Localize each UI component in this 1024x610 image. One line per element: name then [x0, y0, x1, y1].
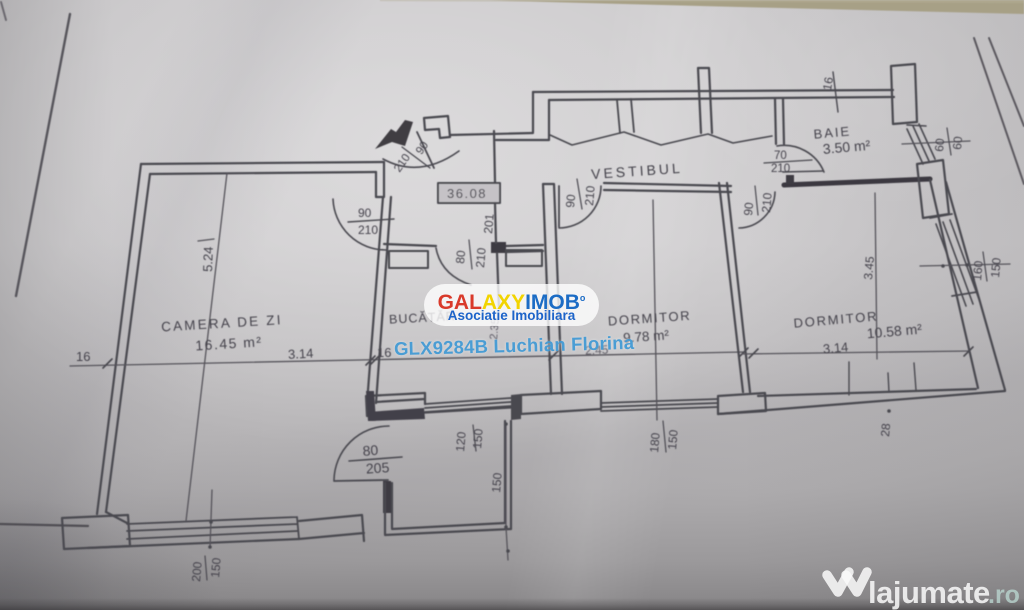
svg-text:210: 210 — [759, 192, 775, 213]
svg-text:210: 210 — [771, 163, 790, 175]
svg-text:120: 120 — [453, 431, 469, 452]
svg-text:210: 210 — [582, 185, 598, 206]
svg-text:16.45 m²: 16.45 m² — [195, 333, 263, 353]
svg-text:80: 80 — [453, 249, 468, 264]
svg-text:180: 180 — [647, 432, 663, 453]
svg-text:28: 28 — [878, 422, 893, 437]
svg-text:201: 201 — [481, 213, 497, 234]
svg-text:90: 90 — [358, 206, 372, 220]
svg-text:150: 150 — [489, 472, 505, 493]
svg-text:3.14: 3.14 — [288, 346, 314, 362]
svg-text:150: 150 — [988, 257, 1004, 278]
svg-text:.ro: .ro — [988, 581, 1020, 609]
svg-text:210: 210 — [473, 247, 489, 268]
svg-text:80: 80 — [362, 442, 379, 459]
svg-text:90: 90 — [741, 201, 756, 216]
svg-text:90: 90 — [563, 193, 578, 208]
svg-text:5.24: 5.24 — [200, 246, 216, 272]
svg-text:10.58 m²: 10.58 m² — [866, 321, 923, 342]
svg-text:60: 60 — [932, 137, 947, 152]
svg-text:16: 16 — [820, 76, 836, 92]
svg-text:205: 205 — [365, 459, 390, 477]
svg-text:210: 210 — [392, 152, 413, 175]
svg-text:150: 150 — [470, 428, 486, 449]
svg-text:36.08: 36.08 — [447, 186, 487, 201]
svg-text:150: 150 — [665, 429, 681, 450]
svg-text:150: 150 — [208, 557, 224, 578]
svg-text:200: 200 — [189, 561, 205, 582]
svg-text:210: 210 — [358, 223, 378, 237]
svg-text:CAMERA DE ZI: CAMERA DE ZI — [161, 312, 283, 334]
svg-text:3.14: 3.14 — [822, 339, 849, 356]
svg-text:3.50 m²: 3.50 m² — [822, 137, 871, 157]
svg-text:70: 70 — [774, 150, 787, 162]
svg-text:lajumate: lajumate — [868, 575, 990, 610]
svg-text:160: 160 — [970, 260, 986, 281]
svg-text:DORMITOR: DORMITOR — [607, 308, 691, 329]
svg-text:VESTIBUL: VESTIBUL — [591, 160, 684, 182]
svg-text:60: 60 — [950, 135, 965, 150]
svg-text:16: 16 — [76, 349, 90, 364]
svg-text:3.45: 3.45 — [861, 255, 877, 280]
